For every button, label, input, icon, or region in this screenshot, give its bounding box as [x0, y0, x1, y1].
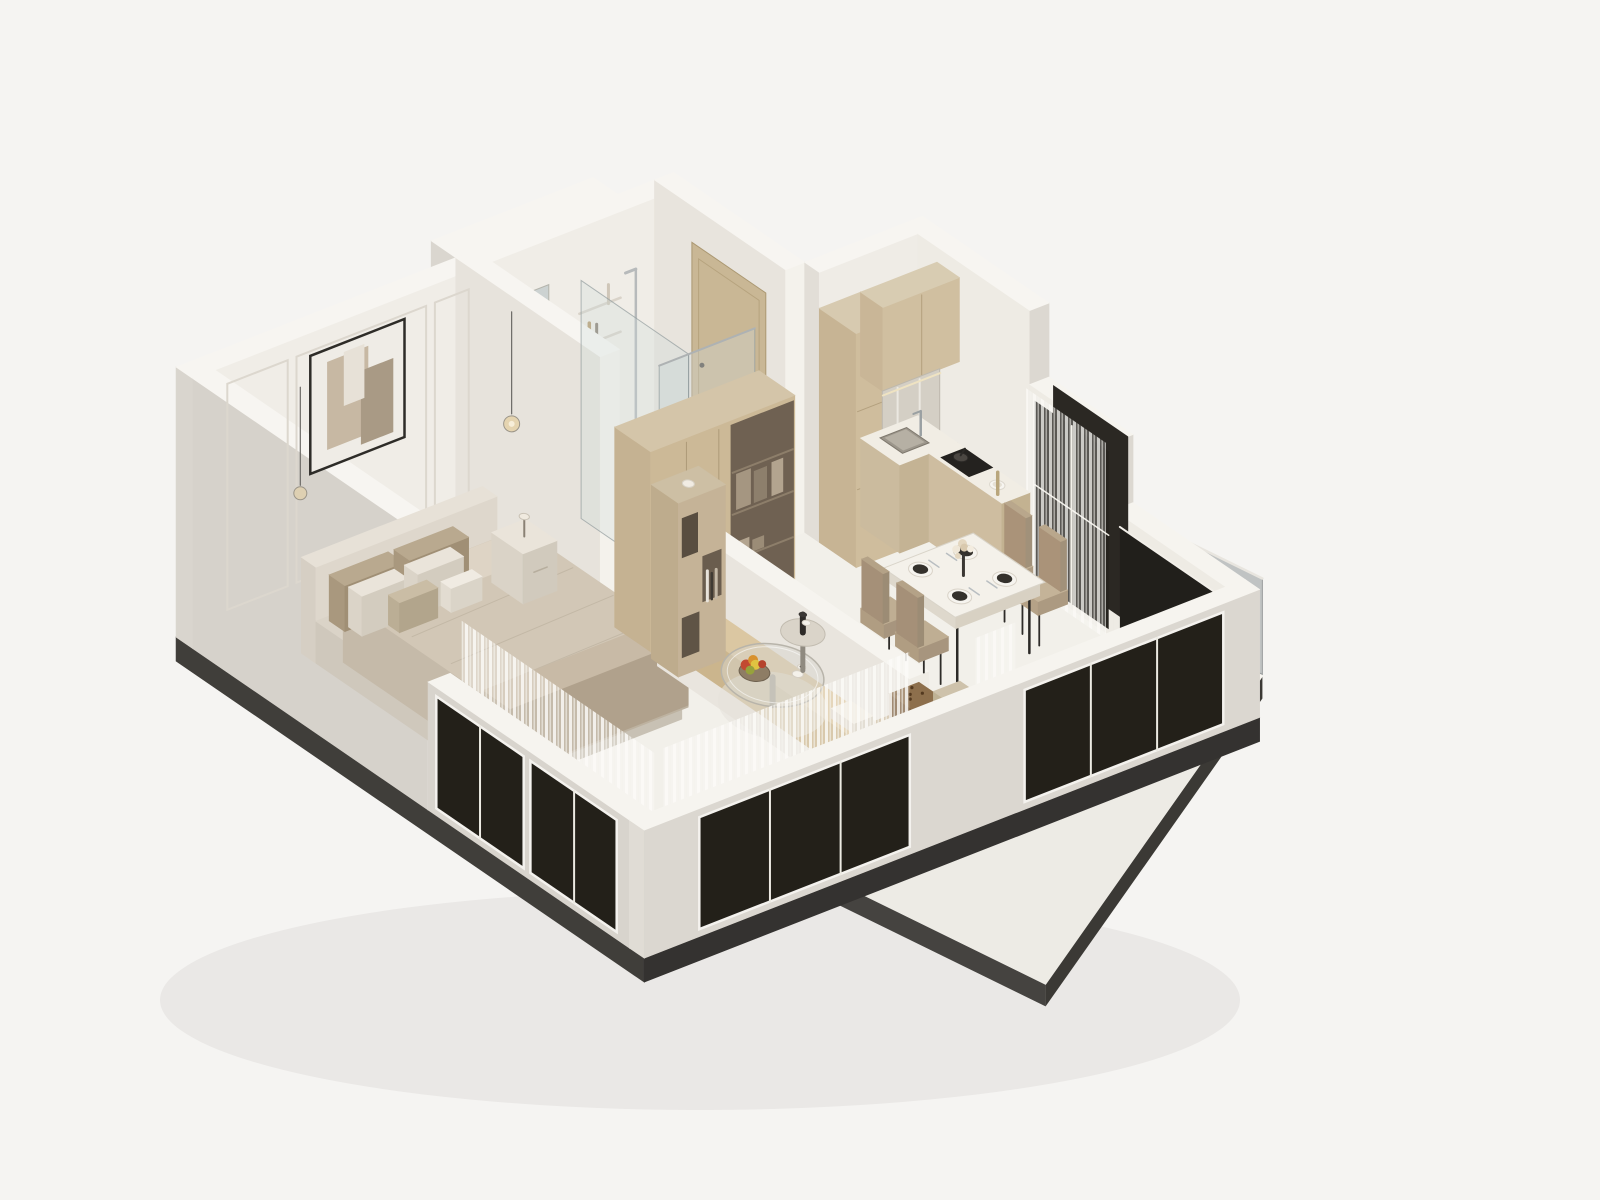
apartment-render-stage [0, 0, 1600, 1200]
hanging-clothes-2 [754, 466, 767, 503]
hanging-clothes-1 [736, 468, 751, 510]
hanging-clothes-3 [772, 458, 784, 497]
shelf-cell-3 [682, 512, 698, 558]
apartment-3d-floorplan [0, 0, 1600, 1200]
shelf-cell-1 [682, 611, 700, 658]
flower-5 [955, 553, 961, 559]
flower-4 [967, 545, 974, 552]
wall-art-ribbon-3 [344, 344, 365, 406]
pendant-bulb [509, 421, 515, 427]
pendant-2-globe [294, 487, 307, 500]
fruit-red-2 [758, 660, 766, 668]
flower-3 [960, 544, 968, 552]
fruit-green [746, 666, 755, 675]
wall-art-ribbon-2 [361, 358, 393, 445]
